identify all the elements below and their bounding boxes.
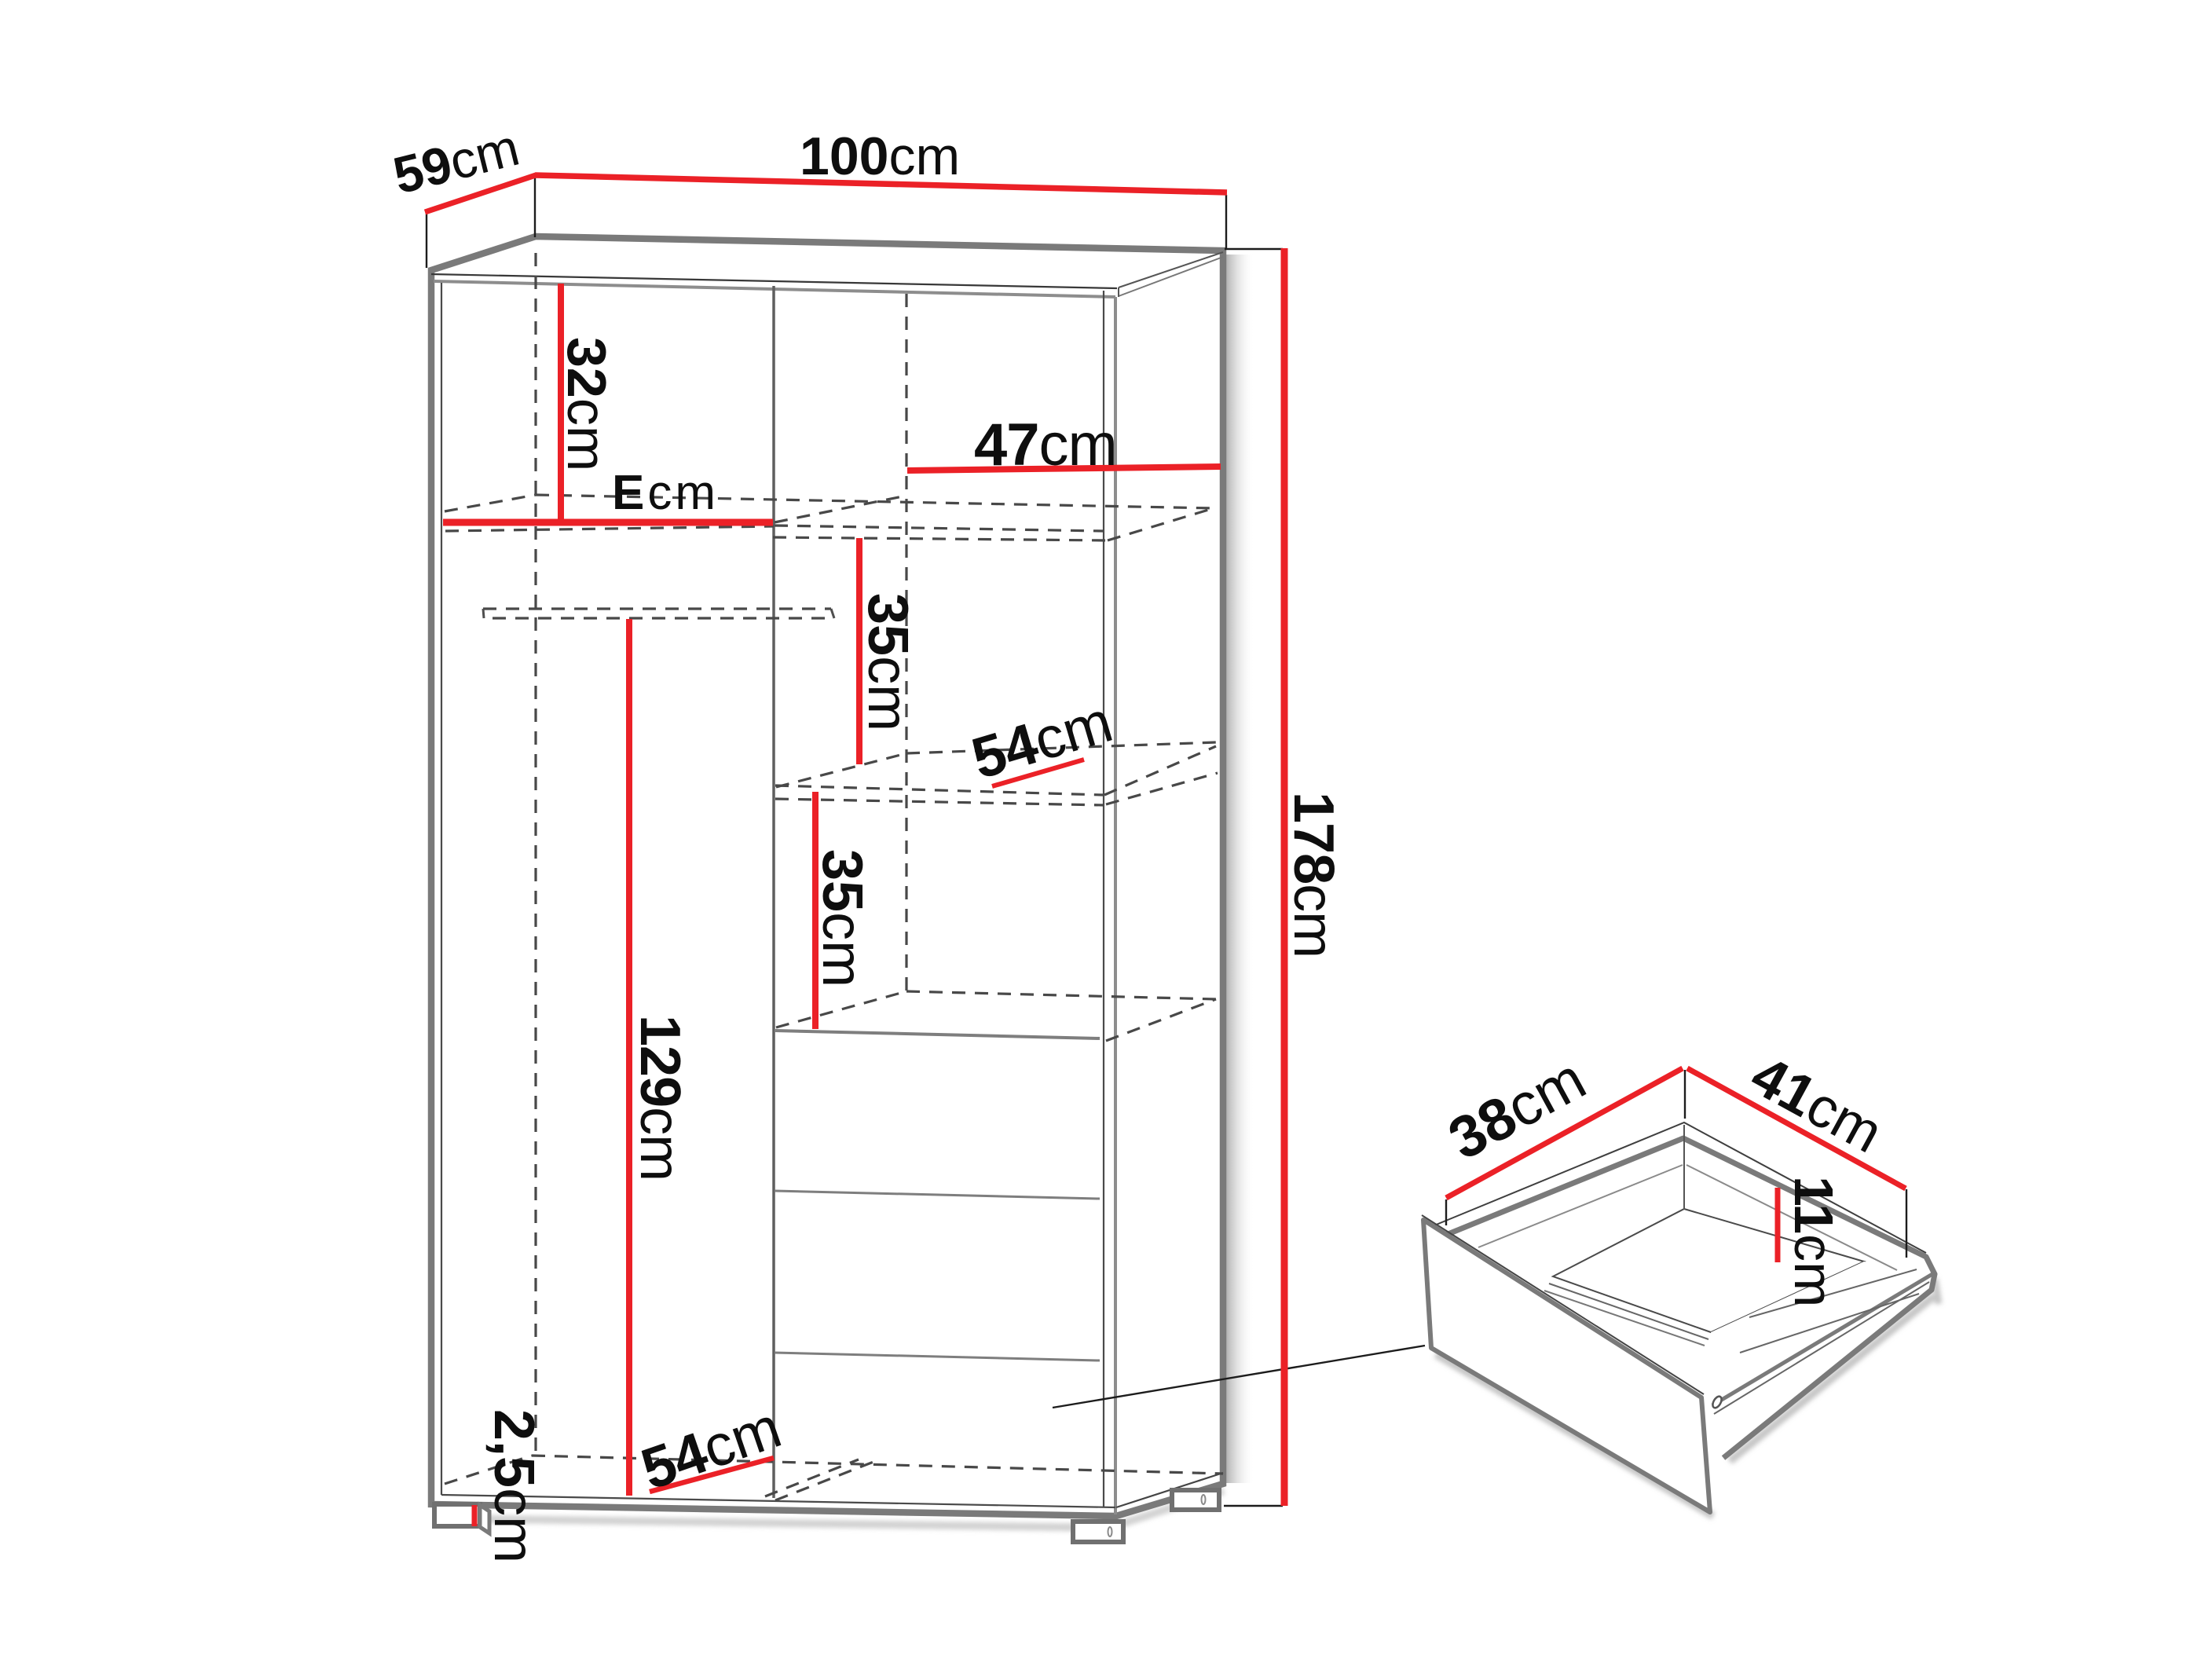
svg-text:47cm: 47cm bbox=[974, 412, 1117, 478]
svg-text:11cm: 11cm bbox=[1783, 1176, 1844, 1307]
svg-text:129cm: 129cm bbox=[628, 1015, 691, 1181]
svg-text:32cm: 32cm bbox=[556, 337, 617, 471]
svg-text:35cm: 35cm bbox=[811, 849, 873, 987]
svg-text:35cm: 35cm bbox=[856, 593, 919, 731]
svg-text:2,5cm: 2,5cm bbox=[482, 1409, 545, 1563]
svg-text:178cm: 178cm bbox=[1282, 792, 1345, 958]
svg-text:Ecm: Ecm bbox=[612, 466, 719, 520]
svg-text:100cm: 100cm bbox=[800, 126, 960, 186]
